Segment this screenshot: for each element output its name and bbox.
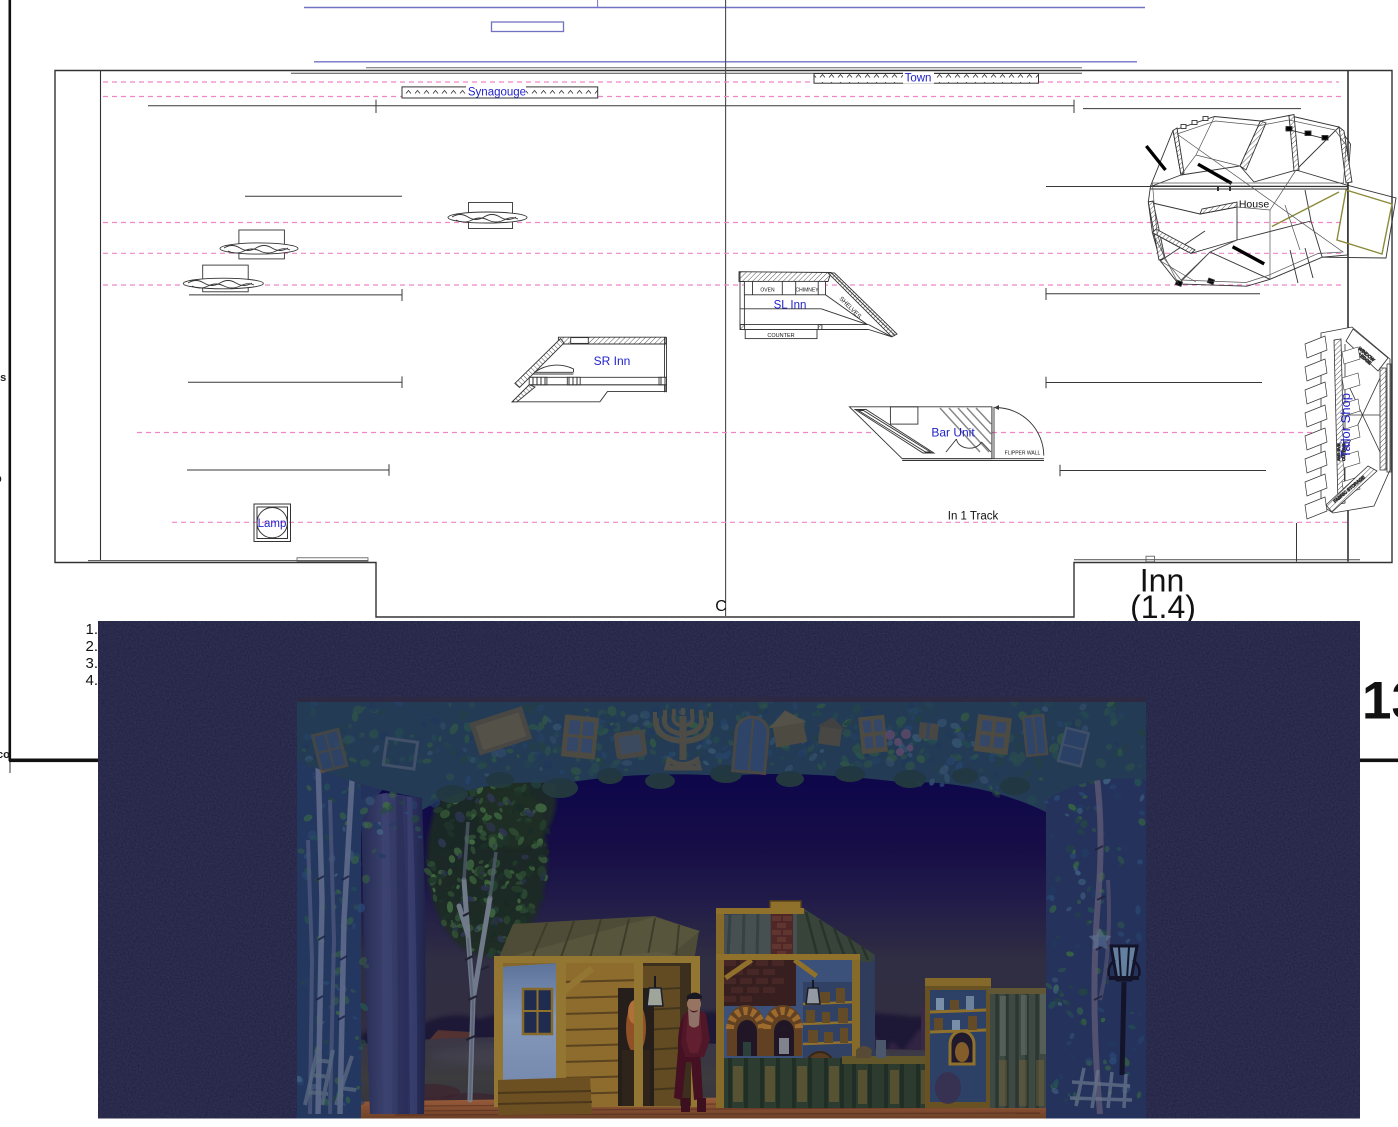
svg-text:Town: Town [905,73,932,85]
svg-text:House: House [1239,199,1270,211]
svg-text:1.: 1. [85,621,98,638]
svg-text:Tailor Shop: Tailor Shop [1338,393,1353,458]
svg-text:In 1 Track: In 1 Track [948,511,999,523]
svg-text:C: C [715,598,727,615]
svg-text:3.: 3. [85,655,98,672]
svg-text:FLIPPER WALL: FLIPPER WALL [1005,451,1041,457]
svg-text:es: es [0,372,6,384]
svg-text:Bar Unit: Bar Unit [931,426,975,440]
svg-text:4.: 4. [85,672,98,689]
svg-text:CHIMNEY: CHIMNEY [795,287,819,293]
svg-text:Lamp: Lamp [258,518,287,530]
svg-text:p: p [0,473,2,485]
svg-text:(1.4): (1.4) [1130,589,1196,625]
svg-text:SL Inn: SL Inn [774,300,807,312]
svg-text:2.: 2. [85,638,98,655]
svg-text:Synagouge: Synagouge [468,87,526,99]
svg-text:OVEN: OVEN [760,287,775,293]
svg-text:COUNTER: COUNTER [767,333,794,339]
svg-text:SR Inn: SR Inn [594,354,631,368]
svg-text:co: co [0,749,10,761]
svg-text:13: 13 [1362,672,1398,731]
